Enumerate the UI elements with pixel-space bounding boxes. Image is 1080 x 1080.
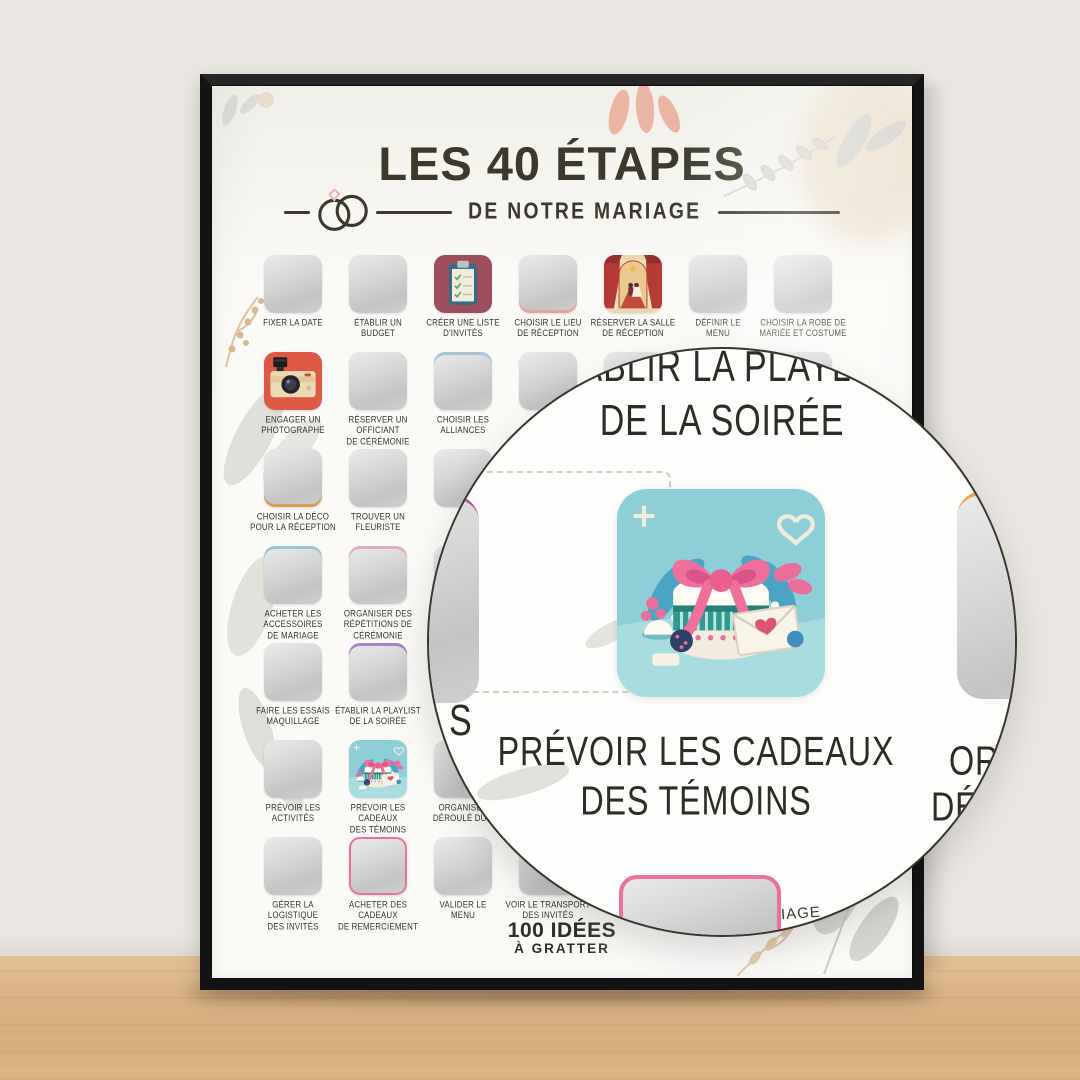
venue-icon <box>604 255 662 313</box>
step-cell: ACHETER DES CADEAUXDE REMERCIEMENT <box>335 835 420 932</box>
step-cell: PRÉVOIR LES CADEAUXDES TÉMOINS <box>335 738 420 835</box>
step-cell: CHOISIR LE LIEUDE RÉCEPTION <box>505 253 590 350</box>
scratch-square[interactable] <box>349 352 407 410</box>
magnified-label-fragment-or: OR <box>949 739 999 785</box>
step-label: CHOISIR LA DÉCOPOUR LA RÉCEPTION <box>247 511 339 533</box>
step-cell: VALIDER LEMENU <box>420 835 505 932</box>
scratch-square[interactable] <box>264 740 322 798</box>
scratch-square[interactable] <box>689 255 747 313</box>
scratch-square[interactable] <box>264 643 322 701</box>
scratch-square[interactable] <box>264 546 322 604</box>
step-cell: ÉTABLIR LA PLAYLISTDE LA SOIRÉE <box>335 641 420 738</box>
step-label: RÉSERVER LA SALLEDE RÉCEPTION <box>587 317 679 339</box>
step-cell: DÉFINIR LEMENU <box>675 253 760 350</box>
gift-icon <box>617 489 825 697</box>
step-cell: CRÉER UNE LISTED'INVITÉS <box>420 253 505 350</box>
scratch-square-fragment-right[interactable] <box>957 491 1017 699</box>
step-label: ORGANISER DESRÉPÉTITIONS DECÉRÉMONIE <box>332 608 424 641</box>
magnified-cadeaux-line1: PRÉVOIR LES CADEAUX <box>445 727 947 777</box>
magnified-label-fragment-der: DÉR <box>931 785 1002 831</box>
gift-icon <box>349 740 407 798</box>
scratch-square[interactable] <box>349 837 407 895</box>
scratch-square[interactable] <box>349 255 407 313</box>
clipboard-icon <box>434 255 492 313</box>
step-label: PRÉVOIR LES CADEAUXDES TÉMOINS <box>332 802 424 835</box>
scratch-square[interactable] <box>264 449 322 507</box>
scratch-square[interactable] <box>434 837 492 895</box>
magnified-playlist-line2: DE LA SOIRÉE <box>473 394 971 448</box>
scratch-square[interactable] <box>264 255 322 313</box>
step-cell: FIXER LA DATE <box>250 253 335 350</box>
step-label: ÉTABLIR LA PLAYLISTDE LA SOIRÉE <box>332 705 424 727</box>
revealed-square[interactable] <box>434 255 492 313</box>
brand-line2: À GRATTER <box>212 941 912 956</box>
step-cell: CHOISIR LA ROBE DEMARIÉE ET COSTUME <box>760 253 845 350</box>
scratch-square[interactable] <box>519 255 577 313</box>
poster-subtitle: DE NOTRE MARIAGE <box>468 199 701 226</box>
brand-logo: 100 IDÉES À GRATTER <box>212 919 912 956</box>
step-label: ENGAGER UNPHOTOGRAPHE <box>247 414 339 436</box>
revealed-square[interactable] <box>264 352 322 410</box>
scratch-square[interactable] <box>349 546 407 604</box>
step-label: RÉSERVER UN OFFICIANTDE CÉRÉMONIE <box>332 414 424 447</box>
scratch-square[interactable] <box>774 255 832 313</box>
magnifier-circle: ÉTABLIR LA PLAYLIST DE LA SOIRÉE PRÉVOIR… <box>427 347 1017 937</box>
poster-title: LES 40 ÉTAPES <box>212 136 912 191</box>
revealed-square[interactable] <box>604 255 662 313</box>
step-cell: ACHETER LES ACCESSOIRESDE MARIAGE <box>250 544 335 641</box>
revealed-square[interactable] <box>349 740 407 798</box>
magnified-cadeaux-line2: DES TÉMOINS <box>445 777 947 827</box>
scratch-square[interactable] <box>264 837 322 895</box>
step-cell: RÉSERVER LA SALLEDE RÉCEPTION <box>590 253 675 350</box>
magnified-label-playlist: ÉTABLIR LA PLAYLIST DE LA SOIRÉE <box>473 347 971 448</box>
divider-line <box>284 211 310 214</box>
magnified-playlist-line1: ÉTABLIR LA PLAYLIST <box>473 347 971 394</box>
scratch-square-fragment-left[interactable] <box>427 495 479 703</box>
step-label: TROUVER UNFLEURISTE <box>332 511 424 533</box>
step-label: CHOISIR LE LIEUDE RÉCEPTION <box>502 317 594 339</box>
step-cell: ÉTABLIR UNBUDGET <box>335 253 420 350</box>
step-cell: TROUVER UNFLEURISTE <box>335 447 420 544</box>
wedding-rings-icon <box>313 186 373 239</box>
step-label: CRÉER UNE LISTED'INVITÉS <box>417 317 509 339</box>
step-label: DÉFINIR LEMENU <box>672 317 764 339</box>
divider-line <box>718 211 840 214</box>
step-label: ÉTABLIR UNBUDGET <box>332 317 424 339</box>
step-cell: CHOISIR LA DÉCOPOUR LA RÉCEPTION <box>250 447 335 544</box>
magnified-label-fragment-s: S <box>449 697 473 746</box>
magnified-label-cadeaux: PRÉVOIR LES CADEAUX DES TÉMOINS <box>445 727 947 826</box>
step-label: FIXER LA DATE <box>247 317 339 328</box>
step-label: ACHETER LES ACCESSOIRESDE MARIAGE <box>247 608 339 641</box>
subtitle-row: DE NOTRE MARIAGE <box>212 188 912 236</box>
step-cell: ENGAGER UNPHOTOGRAPHE <box>250 350 335 447</box>
step-label: CHOISIR LA ROBE DEMARIÉE ET COSTUME <box>757 317 849 339</box>
scratch-square[interactable] <box>349 449 407 507</box>
step-cell: RÉSERVER UN OFFICIANTDE CÉRÉMONIE <box>335 350 420 447</box>
step-cell: PRÉVOIR LESACTIVITÉS <box>250 738 335 835</box>
step-label: PRÉVOIR LESACTIVITÉS <box>247 802 339 824</box>
camera-icon <box>264 352 322 410</box>
step-cell: FAIRE LES ESSAISMAQUILLAGE <box>250 641 335 738</box>
step-label: VALIDER LEMENU <box>417 899 509 921</box>
magnified-label-fragment-iage: IAGE <box>780 904 821 924</box>
divider-line <box>376 211 452 214</box>
step-cell: GÉRER LA LOGISTIQUEDES INVITÉS <box>250 835 335 932</box>
step-cell: ORGANISER DESRÉPÉTITIONS DECÉRÉMONIE <box>335 544 420 641</box>
step-label: VOIR LE TRANSPORTDES INVITÉS <box>502 899 594 921</box>
scratch-square[interactable] <box>349 643 407 701</box>
magnified-gift-square[interactable] <box>617 489 825 697</box>
scratch-square-fragment-bottom[interactable] <box>619 875 781 937</box>
step-label: FAIRE LES ESSAISMAQUILLAGE <box>247 705 339 727</box>
